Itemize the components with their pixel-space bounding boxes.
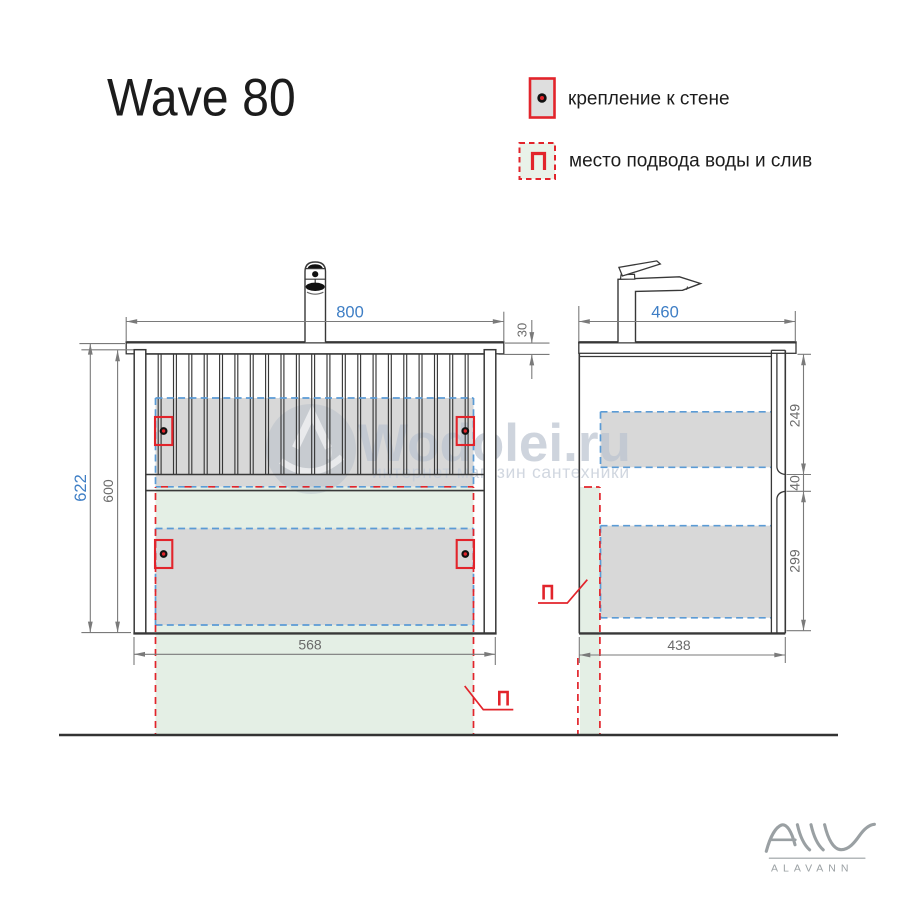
svg-text:30: 30 bbox=[515, 323, 530, 337]
svg-text:299: 299 bbox=[787, 549, 803, 573]
svg-text:ALAVANN: ALAVANN bbox=[771, 863, 853, 875]
svg-text:800: 800 bbox=[336, 304, 364, 322]
svg-text:438: 438 bbox=[667, 637, 691, 653]
svg-text:600: 600 bbox=[100, 479, 116, 503]
svg-text:568: 568 bbox=[298, 637, 322, 653]
svg-text:249: 249 bbox=[787, 404, 803, 428]
svg-text:интернет магазин сантехники: интернет магазин сантехники bbox=[372, 462, 630, 482]
svg-text:40: 40 bbox=[787, 475, 803, 491]
svg-text:место подвода воды и слив: место подвода воды и слив bbox=[569, 151, 812, 172]
svg-text:Wave 80: Wave 80 bbox=[107, 68, 296, 127]
svg-text:622: 622 bbox=[72, 474, 90, 502]
svg-text:460: 460 bbox=[651, 304, 679, 322]
svg-text:крепление к стене: крепление к стене bbox=[568, 89, 730, 110]
